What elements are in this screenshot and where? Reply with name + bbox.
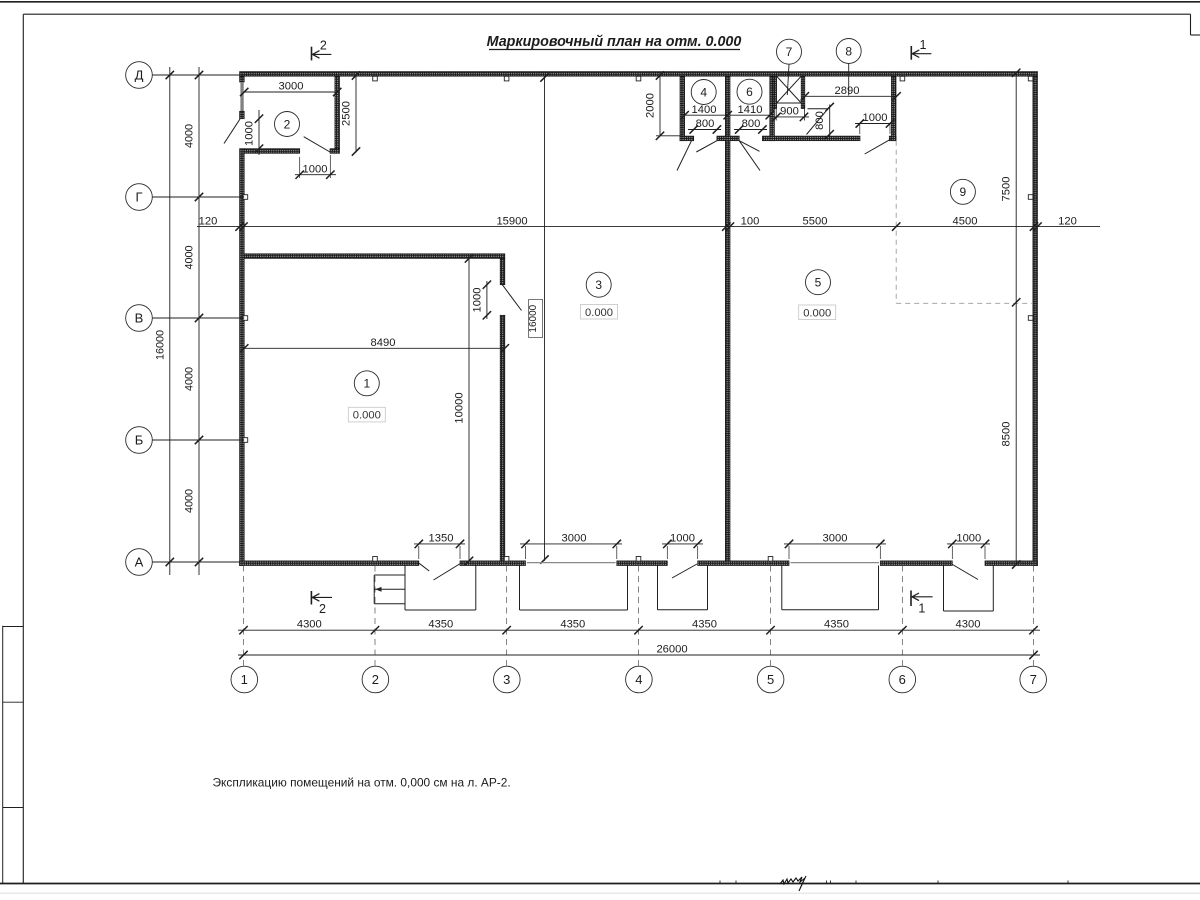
svg-text:4: 4 [635,672,642,687]
svg-text:15900: 15900 [496,215,527,227]
svg-text:1400: 1400 [692,104,717,116]
svg-text:4350: 4350 [692,618,717,630]
svg-text:120: 120 [199,215,218,227]
svg-text:1000: 1000 [471,288,483,313]
svg-text:2500: 2500 [341,101,353,126]
svg-text:4300: 4300 [956,618,981,630]
svg-text:6: 6 [746,85,753,99]
svg-text:2: 2 [320,39,327,53]
svg-text:2: 2 [319,602,326,616]
svg-text:10000: 10000 [454,392,466,423]
svg-text:4: 4 [700,85,707,99]
svg-text:900: 900 [780,106,799,118]
svg-text:800: 800 [742,118,761,130]
svg-text:1: 1 [363,377,370,391]
svg-text:16000: 16000 [528,304,539,332]
svg-text:4350: 4350 [428,618,453,630]
svg-text:7500: 7500 [1001,177,1013,202]
svg-text:0.000: 0.000 [585,307,613,319]
svg-text:0.000: 0.000 [353,410,381,422]
svg-text:6: 6 [899,672,906,687]
svg-text:Б: Б [135,433,144,448]
svg-text:1: 1 [918,602,925,616]
svg-text:А: А [135,555,144,570]
svg-text:9: 9 [960,185,967,199]
svg-text:5: 5 [767,672,774,687]
svg-text:5500: 5500 [803,215,828,227]
svg-text:8500: 8500 [1001,422,1013,447]
svg-text:1000: 1000 [303,163,328,175]
svg-text:2890: 2890 [835,85,860,97]
svg-text:4000: 4000 [184,367,196,391]
svg-text:Маркировочный план на отм. 0.0: Маркировочный план на отм. 0.000 [487,34,742,50]
svg-text:1: 1 [920,38,927,52]
svg-text:5: 5 [815,276,822,290]
svg-text:Д: Д [135,68,144,83]
svg-text:3000: 3000 [279,81,304,93]
svg-text:4000: 4000 [184,124,196,148]
svg-text:100: 100 [741,215,760,227]
svg-text:1000: 1000 [863,112,888,124]
svg-text:2: 2 [284,117,291,131]
svg-text:4350: 4350 [560,618,585,630]
svg-text:3: 3 [503,672,510,687]
svg-text:8: 8 [845,44,852,58]
svg-text:26000: 26000 [656,643,687,655]
svg-text:0.000: 0.000 [803,307,831,319]
svg-text:4000: 4000 [184,245,196,269]
svg-text:Г: Г [135,190,142,205]
svg-text:7: 7 [1030,672,1037,687]
svg-text:3000: 3000 [823,533,848,545]
svg-text:7: 7 [786,45,793,59]
svg-text:4500: 4500 [953,215,978,227]
svg-text:16000: 16000 [155,330,167,360]
svg-text:1410: 1410 [738,104,763,116]
svg-text:800: 800 [814,111,826,130]
svg-text:1000: 1000 [670,533,695,545]
svg-text:1350: 1350 [429,533,454,545]
svg-text:4300: 4300 [297,618,322,630]
svg-text:1: 1 [241,672,248,687]
svg-text:800: 800 [696,118,715,130]
svg-text:1000: 1000 [956,533,981,545]
svg-text:4350: 4350 [824,618,849,630]
svg-text:8490: 8490 [371,337,396,349]
svg-text:1000: 1000 [244,121,256,146]
svg-text:3000: 3000 [562,533,587,545]
svg-text:2: 2 [372,672,379,687]
svg-text:В: В [135,311,144,326]
svg-text:120: 120 [1058,215,1077,227]
svg-text:4000: 4000 [184,489,196,513]
svg-text:Экспликацию помещений на отм.: Экспликацию помещений на отм. 0,000 см н… [213,776,511,790]
svg-text:3: 3 [595,278,602,292]
svg-text:2000: 2000 [645,93,657,118]
